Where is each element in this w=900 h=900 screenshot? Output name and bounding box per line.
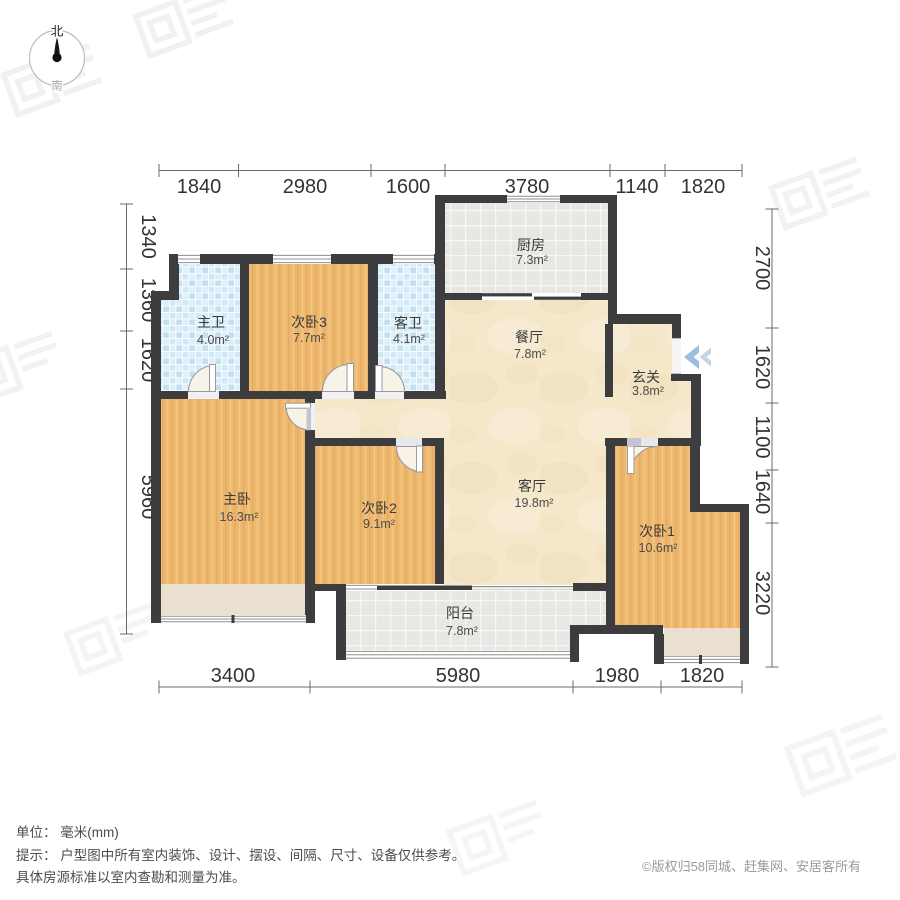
svg-text:餐厅: 餐厅 [515, 329, 543, 345]
svg-text:客卫: 客卫 [394, 315, 422, 331]
svg-text:1140: 1140 [615, 176, 658, 198]
svg-text:1980: 1980 [595, 665, 640, 687]
svg-text:3220: 3220 [751, 571, 773, 616]
svg-text:1340: 1340 [137, 214, 159, 259]
svg-text:次卧3: 次卧3 [291, 314, 327, 330]
svg-text:玄关: 玄关 [632, 369, 660, 385]
svg-text:1600: 1600 [386, 176, 431, 198]
svg-text:3400: 3400 [211, 665, 256, 687]
svg-text:具体房源标准以室内查勘和测量为准。: 具体房源标准以室内查勘和测量为准。 [16, 869, 246, 885]
svg-text:10.6m²: 10.6m² [639, 541, 678, 555]
svg-text:3.8m²: 3.8m² [632, 384, 664, 398]
svg-text:3780: 3780 [505, 176, 550, 198]
svg-text:2980: 2980 [283, 176, 328, 198]
svg-text:1820: 1820 [680, 665, 725, 687]
svg-text:4.0m²: 4.0m² [197, 333, 229, 347]
svg-text:4.1m²: 4.1m² [393, 332, 425, 346]
svg-text:©版权归58同城、赶集网、安居客所有: ©版权归58同城、赶集网、安居客所有 [642, 859, 861, 874]
svg-text:9.1m²: 9.1m² [363, 517, 395, 531]
svg-text:南: 南 [51, 79, 63, 93]
svg-text:阳台: 阳台 [446, 605, 474, 621]
svg-text:次卧2: 次卧2 [361, 500, 397, 516]
svg-text:客厅: 客厅 [518, 478, 546, 494]
svg-text:次卧1: 次卧1 [639, 523, 675, 539]
svg-text:7.3m²: 7.3m² [516, 253, 548, 267]
svg-text:主卫: 主卫 [197, 314, 225, 330]
svg-text:北: 北 [51, 25, 64, 39]
svg-text:提示： 户型图中所有室内装饰、设计、摆设、间隔、尺寸、设备: 提示： 户型图中所有室内装饰、设计、摆设、间隔、尺寸、设备仅供参考。 [16, 847, 465, 863]
svg-text:1620: 1620 [751, 345, 773, 390]
svg-text:7.8m²: 7.8m² [446, 624, 478, 638]
svg-text:单位： 毫米(mm): 单位： 毫米(mm) [16, 824, 119, 840]
svg-text:16.3m²: 16.3m² [220, 510, 259, 524]
svg-text:1840: 1840 [177, 176, 222, 198]
svg-text:主卧: 主卧 [223, 491, 251, 507]
svg-text:2700: 2700 [751, 246, 773, 291]
svg-text:1820: 1820 [681, 176, 726, 198]
svg-text:1640: 1640 [751, 470, 773, 515]
svg-text:19.8m²: 19.8m² [515, 496, 554, 510]
svg-text:7.8m²: 7.8m² [514, 347, 546, 361]
svg-text:厨房: 厨房 [517, 237, 545, 253]
svg-text:7.7m²: 7.7m² [293, 331, 325, 345]
svg-text:1100: 1100 [751, 415, 773, 458]
svg-text:5980: 5980 [436, 665, 481, 687]
